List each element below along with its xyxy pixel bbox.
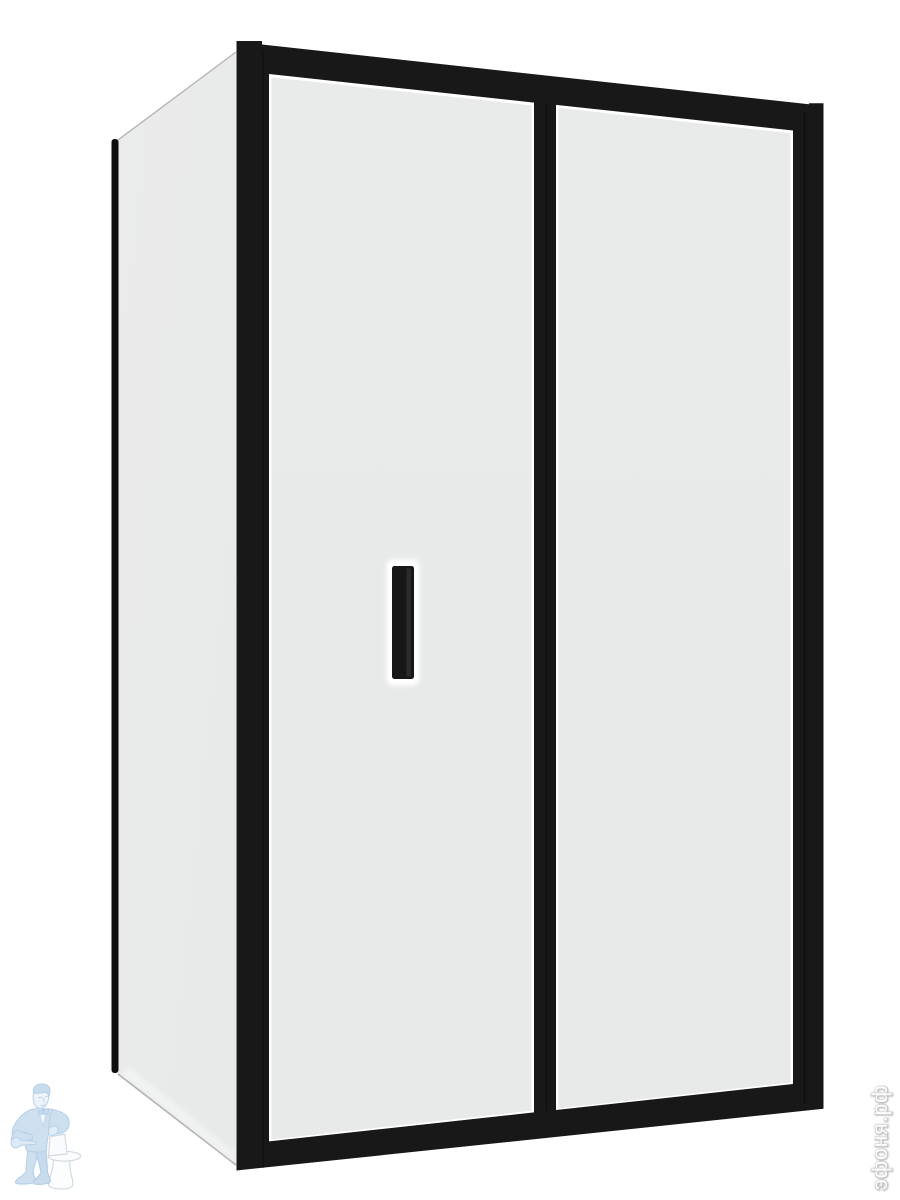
svg-text:эфоня.рф: эфоня.рф bbox=[869, 1085, 892, 1190]
